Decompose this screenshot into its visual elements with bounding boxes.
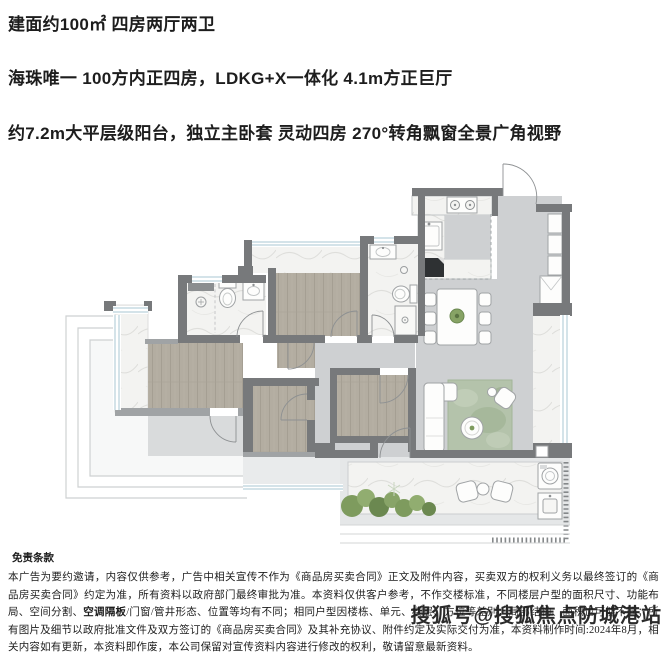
window-master-bath [374,236,394,244]
disclaimer-title: 免责条款 [12,550,659,565]
watermark: 搜狐号@搜狐焦点防城港站 [410,599,662,628]
window-guest-bath [192,275,222,283]
headline-balcony: 约7.2m大平层级阳台，独立主卧套 灵动四房 270°转角飘窗全景广角视野 [8,119,561,144]
window-bedroom2-bay [252,240,360,247]
disclaimer-bold-term: 空调隔板 [83,607,126,618]
kitchen-floor [445,215,491,259]
balcony-left-floor [243,457,343,487]
bedroom3-floor [337,375,408,436]
master-bedroom-floor [148,343,243,408]
dining-set [424,289,491,345]
bedroom2-floor [276,273,360,336]
living-furniture [424,380,518,454]
cabinet-icon [548,256,562,275]
window-right-bay [560,315,570,443]
page-root: { "headlines": [ {"text": "建面约100㎡ 四房两厅两… [0,0,665,637]
headline-area: 建面约100㎡ 四房两厅两卫 [8,10,215,35]
floor-drain-icon [401,267,408,274]
headline-layout: 海珠唯一 100方内正四房，LDKG+X一体化 4.1m方正巨厅 [8,64,453,89]
cabinet-icon [548,235,562,254]
cabinet-icon [548,214,562,233]
side-table-icon [488,388,497,397]
floor-plan-image [0,150,665,550]
walk-in-closet-floor [253,386,315,452]
balcony-table-icon [477,483,489,495]
terrace-floor [148,416,243,456]
bath-counter-icon [188,283,214,291]
right-bay-floor [533,315,560,443]
window-balcony-rail [243,484,343,491]
